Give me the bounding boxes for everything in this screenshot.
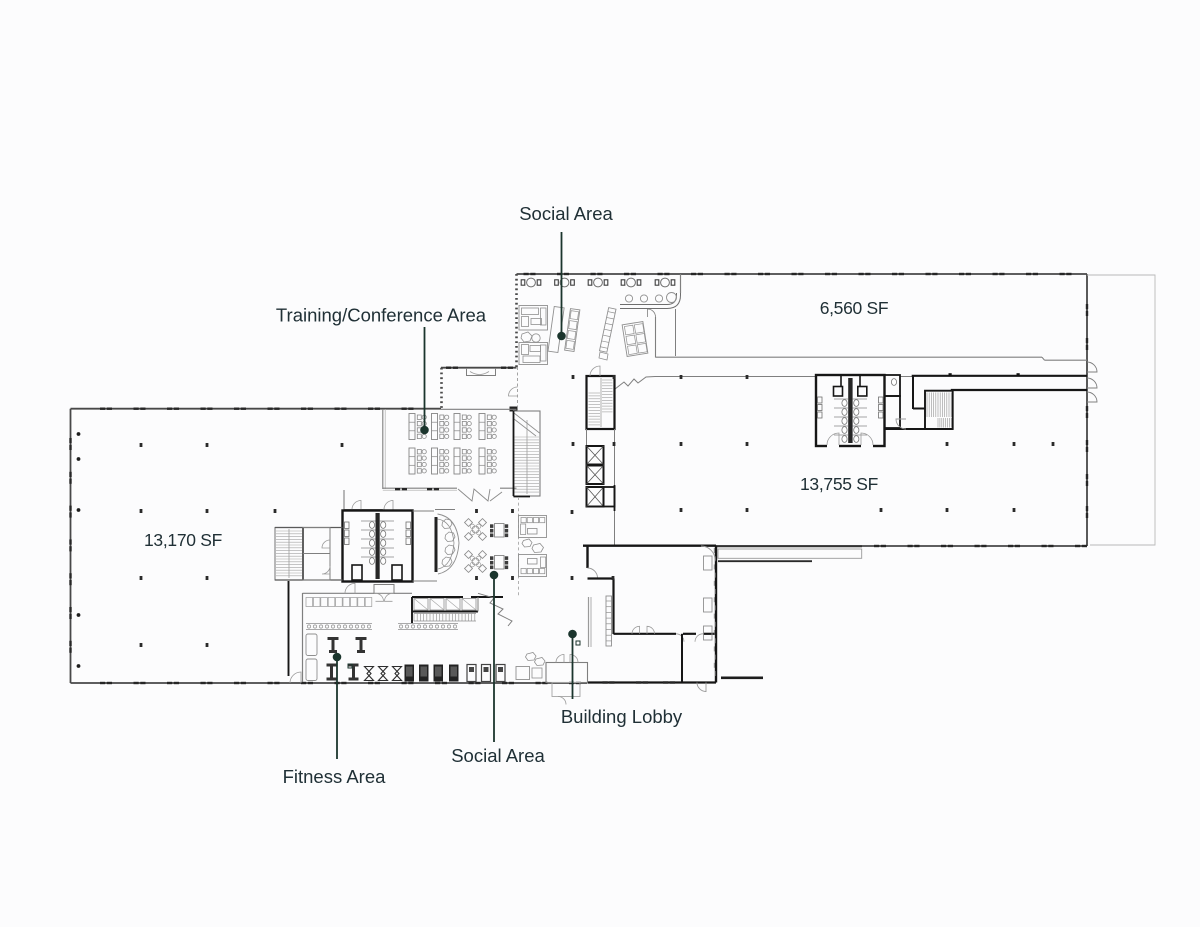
svg-text:Building Lobby: Building Lobby	[561, 706, 683, 727]
svg-text:13,755 SF: 13,755 SF	[800, 474, 878, 494]
svg-text:Training/Conference Area: Training/Conference Area	[276, 305, 487, 326]
svg-text:Fitness Area: Fitness Area	[283, 766, 387, 787]
svg-text:6,560 SF: 6,560 SF	[820, 298, 889, 318]
svg-text:Social Area: Social Area	[451, 745, 545, 766]
svg-text:13,170 SF: 13,170 SF	[144, 530, 222, 550]
svg-text:Social Area: Social Area	[519, 203, 613, 224]
